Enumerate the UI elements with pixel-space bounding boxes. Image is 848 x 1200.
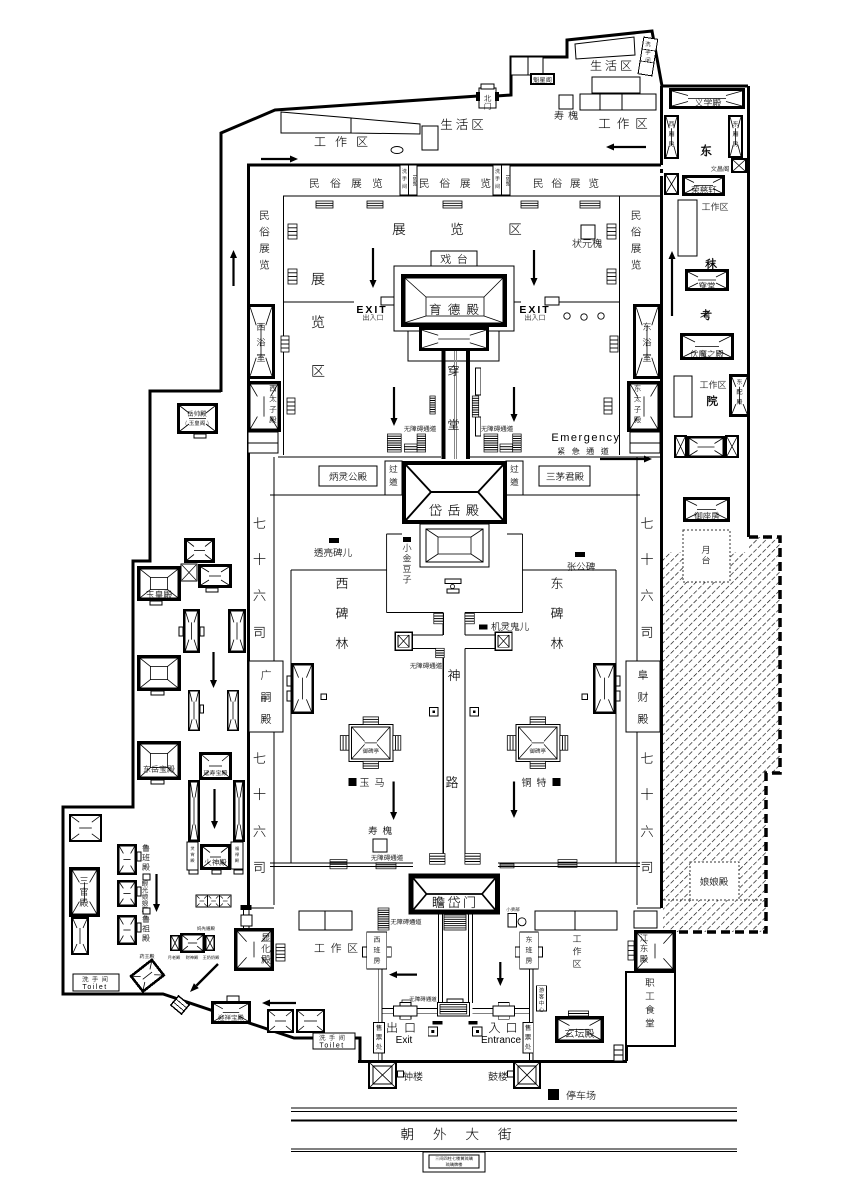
svg-text:Emergency: Emergency: [551, 432, 620, 444]
svg-text:Toilet: Toilet: [504, 174, 510, 186]
svg-text:Toilet: Toilet: [411, 174, 417, 186]
svg-text:Entrance: Entrance: [481, 1035, 521, 1046]
svg-text:Exit: Exit: [396, 1035, 413, 1046]
svg-text:Toilet: Toilet: [82, 984, 107, 991]
svg-text:Toilet: Toilet: [319, 1043, 344, 1050]
svg-text:EXIT: EXIT: [519, 304, 550, 316]
svg-text:EXIT: EXIT: [356, 304, 387, 316]
